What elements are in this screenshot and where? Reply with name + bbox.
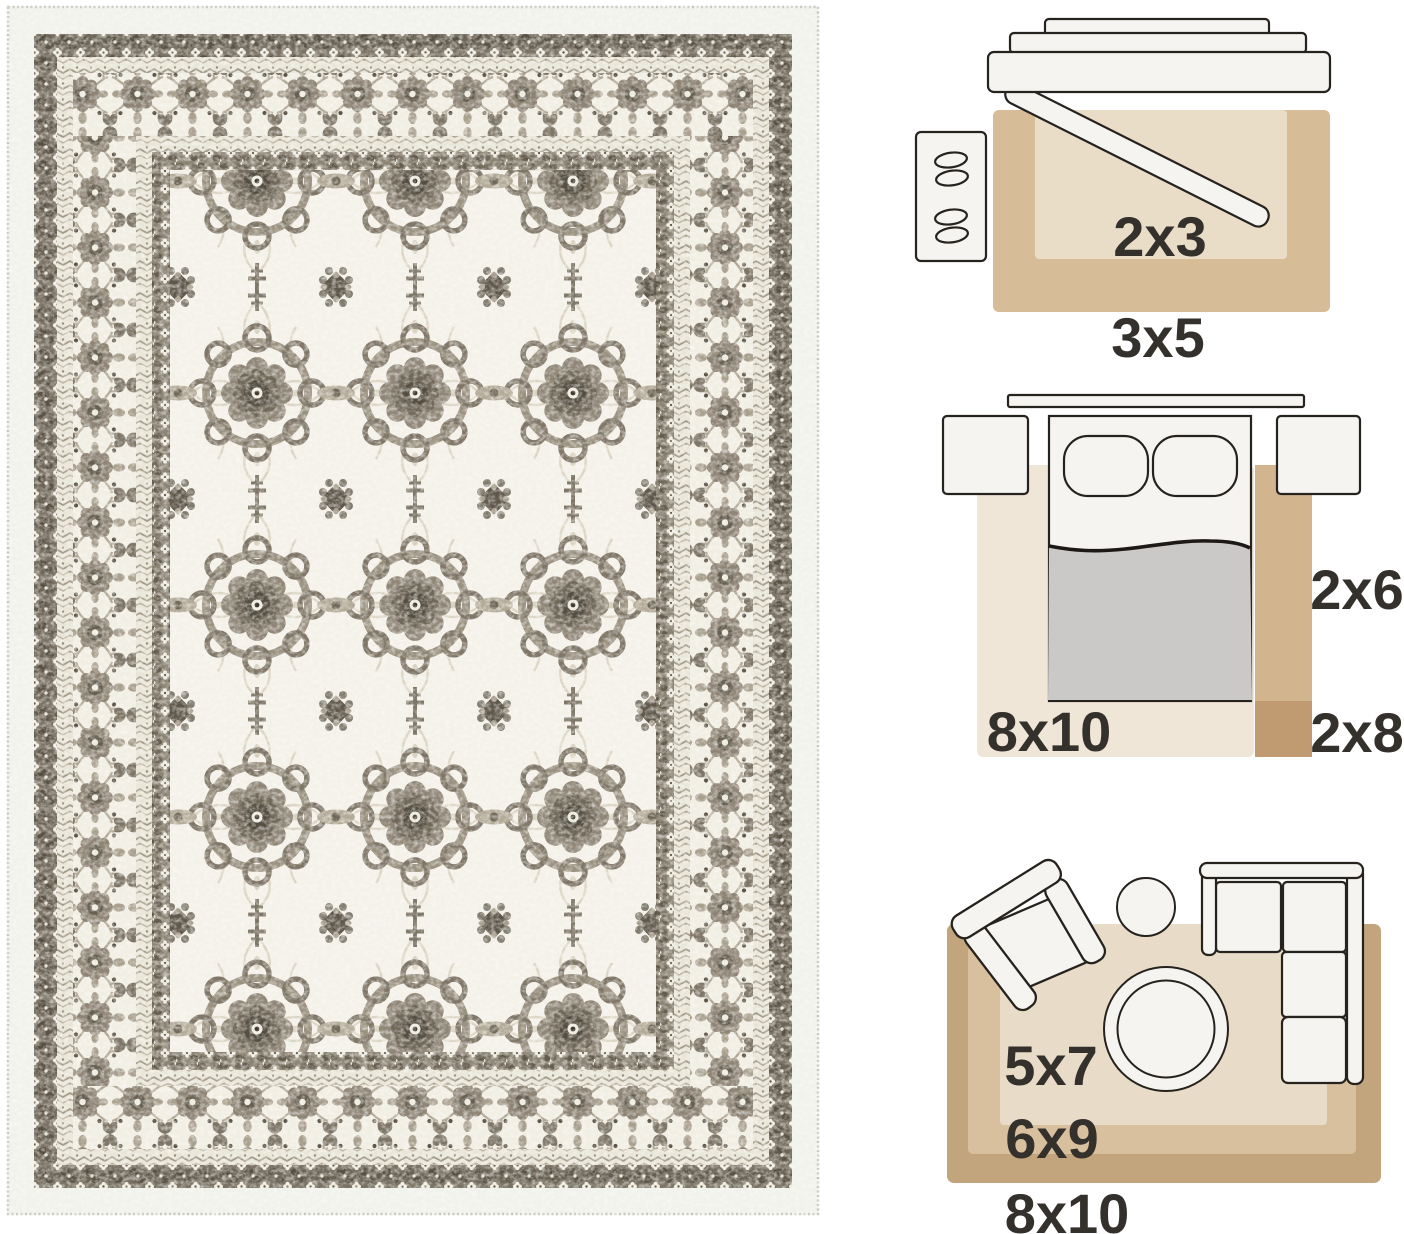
svg-text:3x5: 3x5 <box>1111 306 1204 369</box>
svg-text:2x6: 2x6 <box>1310 558 1403 621</box>
svg-text:8x10: 8x10 <box>1005 1182 1130 1234</box>
svg-text:2x3: 2x3 <box>1113 205 1206 268</box>
svg-text:2x8: 2x8 <box>1310 701 1403 764</box>
svg-text:5x7: 5x7 <box>1004 1034 1097 1097</box>
svg-text:6x9: 6x9 <box>1005 1107 1098 1170</box>
svg-text:8x10: 8x10 <box>987 700 1112 763</box>
